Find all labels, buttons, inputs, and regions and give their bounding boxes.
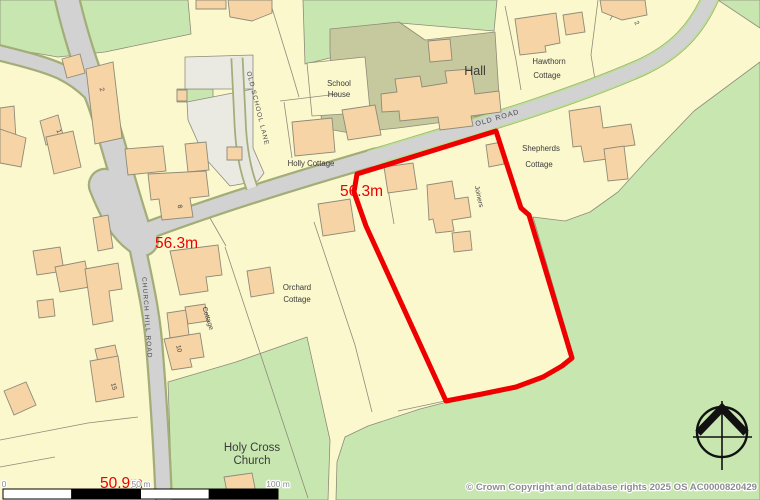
b-yard: [185, 142, 209, 172]
scale-bar-segment: [141, 489, 210, 499]
label-orchard-1: Orchard: [283, 283, 311, 292]
b-holly-cottage: [292, 118, 335, 156]
scale-label-0: 0: [2, 479, 7, 489]
b-top-1: [196, 0, 226, 9]
scale-label-50: 50 m: [132, 479, 151, 489]
label-holy-cross-2: Church: [233, 455, 270, 467]
spot-height-2: 56.3m: [155, 235, 198, 252]
b-hawthorn-annex: [563, 12, 585, 35]
b-west-of-site: [318, 199, 355, 236]
label-hall: Hall: [464, 64, 486, 78]
b-yard-sq: [177, 90, 187, 101]
scale-bar-segment: [209, 489, 278, 499]
b-30: [37, 299, 55, 318]
b-cottage: [167, 310, 189, 338]
b-no15: [90, 356, 124, 402]
copyright: © Crown Copyright and database rights 20…: [466, 482, 757, 493]
label-school-house-2: House: [328, 90, 351, 99]
label-shepherds-2: Cottage: [525, 160, 552, 169]
b-orchard-n2: [247, 267, 274, 297]
b-13: [227, 147, 242, 160]
b-joiners-small: [452, 231, 472, 252]
label-hawthorn-1: Hawthorn: [532, 57, 565, 66]
b-hall-north: [428, 39, 452, 62]
label-shepherds-1: Shepherds: [522, 144, 560, 153]
b-11: [125, 146, 166, 175]
map-canvas: HallSchoolHouseHawthornCottageHolly Cott…: [0, 0, 760, 500]
label-holly-cottage: Holly Cottage: [288, 159, 335, 168]
label-school-house-1: School: [327, 79, 351, 88]
b-28: [55, 261, 90, 292]
label-holy-cross-1: Holy Cross: [224, 442, 280, 454]
b-joiners-a: [384, 163, 417, 193]
b-school-house: [342, 105, 381, 140]
b-shepherds-annex: [604, 146, 628, 181]
scale-label-100: 100 m: [266, 479, 290, 489]
label-hawthorn-2: Cottage: [533, 71, 560, 80]
map-view: HallSchoolHouseHawthornCottageHolly Cott…: [0, 0, 760, 500]
label-orchard-2: Cottage: [283, 295, 310, 304]
spot-height-1: 56.3m: [340, 183, 383, 200]
scale-bar-segment: [3, 489, 72, 499]
